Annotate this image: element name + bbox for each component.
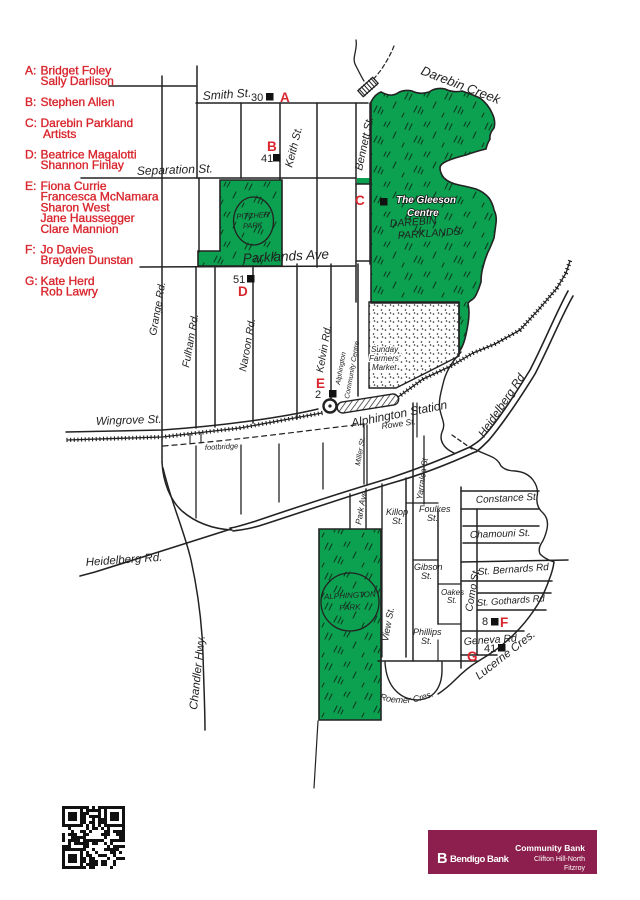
svg-text:St.: St.: [421, 571, 432, 581]
svg-text:C:: C:: [25, 116, 37, 130]
svg-text:Stephen Allen: Stephen Allen: [41, 95, 115, 109]
svg-text:St.: St.: [421, 636, 432, 646]
svg-text:E: E: [316, 376, 325, 391]
svg-text:A:: A:: [25, 64, 36, 78]
svg-text:Farmers': Farmers': [369, 354, 401, 363]
svg-text:B: B: [437, 851, 447, 867]
svg-text:Artists: Artists: [43, 127, 76, 141]
svg-text:The Gleeson: The Gleeson: [396, 195, 456, 206]
svg-text:Fitzroy: Fitzroy: [564, 865, 586, 872]
svg-text:30: 30: [251, 92, 263, 104]
svg-text:41: 41: [261, 153, 273, 165]
svg-text:Sally Darlison: Sally Darlison: [41, 74, 114, 88]
svg-text:41: 41: [484, 643, 496, 655]
svg-text:PARK: PARK: [339, 602, 361, 612]
svg-text:B:: B:: [25, 95, 36, 109]
svg-text:Clare Mannion: Clare Mannion: [41, 222, 119, 236]
svg-text:B: B: [267, 139, 277, 154]
svg-text:Brayden Dunstan: Brayden Dunstan: [41, 253, 134, 267]
svg-text:G: G: [467, 649, 478, 664]
svg-text:Separation St.: Separation St.: [137, 161, 214, 178]
svg-text:C: C: [355, 193, 365, 208]
svg-text:Wingrove St.: Wingrove St.: [96, 414, 162, 428]
svg-text:F: F: [500, 615, 508, 630]
svg-text:G:: G:: [25, 274, 38, 288]
svg-text:St.: St.: [447, 596, 457, 605]
svg-text:A: A: [280, 90, 290, 105]
svg-text:D: D: [238, 284, 248, 299]
svg-text:Bendigo Bank: Bendigo Bank: [450, 854, 510, 865]
svg-text:Chamouni St.: Chamouni St.: [470, 528, 531, 541]
svg-text:Market: Market: [372, 363, 397, 372]
svg-text:St.: St.: [392, 516, 403, 526]
svg-text:Clifton Hill-North: Clifton Hill-North: [534, 856, 585, 863]
svg-text:E:: E:: [25, 179, 36, 193]
svg-text:Rob Lawry: Rob Lawry: [41, 285, 98, 299]
svg-text:Community Bank: Community Bank: [515, 843, 585, 853]
svg-text:PARK: PARK: [243, 220, 264, 230]
svg-text:footbridge: footbridge: [205, 441, 239, 452]
svg-text:Shannon Finlay: Shannon Finlay: [41, 158, 124, 172]
svg-text:St.: St.: [427, 513, 438, 523]
svg-text:F:: F:: [25, 243, 36, 257]
svg-text:Sunday: Sunday: [371, 345, 399, 354]
svg-text:D:: D:: [25, 148, 37, 162]
svg-text:8: 8: [482, 616, 488, 628]
